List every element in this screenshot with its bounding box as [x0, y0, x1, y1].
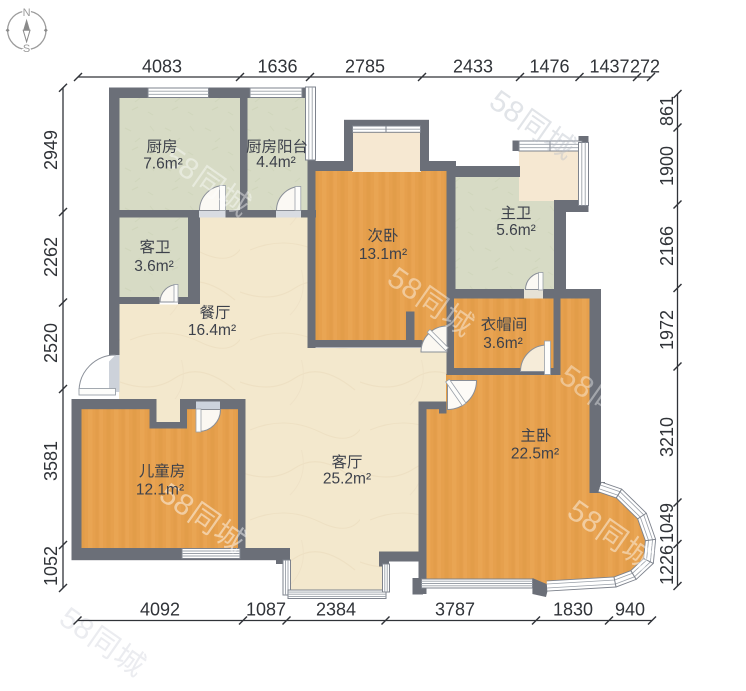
svg-text:3.6m²: 3.6m² — [483, 335, 523, 352]
svg-text:1087: 1087 — [246, 600, 286, 620]
svg-text:7.6m²: 7.6m² — [143, 156, 183, 173]
svg-text:4.4m²: 4.4m² — [256, 154, 296, 171]
svg-text:4083: 4083 — [142, 57, 182, 77]
svg-text:1830: 1830 — [553, 600, 593, 620]
svg-text:2520: 2520 — [41, 323, 61, 363]
svg-text:861: 861 — [657, 96, 677, 126]
svg-text:25.2m²: 25.2m² — [323, 471, 371, 488]
svg-text:3787: 3787 — [435, 600, 475, 620]
svg-text:3581: 3581 — [41, 441, 61, 481]
svg-text:12.1m²: 12.1m² — [136, 482, 184, 499]
svg-text:4092: 4092 — [140, 600, 180, 620]
svg-text:3210: 3210 — [657, 417, 677, 457]
svg-text:1049: 1049 — [657, 503, 677, 543]
svg-text:1636: 1636 — [257, 57, 297, 77]
svg-text:1972: 1972 — [657, 310, 677, 350]
svg-text:1226: 1226 — [657, 545, 677, 585]
svg-text:1052: 1052 — [41, 546, 61, 586]
svg-text:2949: 2949 — [41, 130, 61, 170]
svg-text:2384: 2384 — [316, 600, 356, 620]
svg-text:2262: 2262 — [41, 237, 61, 277]
svg-text:1437: 1437 — [589, 57, 629, 77]
svg-text:16.4m²: 16.4m² — [188, 322, 236, 339]
svg-text:N: N — [23, 7, 31, 19]
svg-text:272: 272 — [630, 57, 660, 77]
svg-text:940: 940 — [615, 600, 645, 620]
svg-text:2433: 2433 — [453, 57, 493, 77]
svg-text:1476: 1476 — [529, 57, 569, 77]
svg-text:2166: 2166 — [657, 226, 677, 266]
svg-text:S: S — [23, 43, 30, 55]
svg-text:22.5m²: 22.5m² — [511, 446, 559, 463]
svg-text:13.1m²: 13.1m² — [359, 246, 407, 263]
svg-text:2785: 2785 — [345, 57, 385, 77]
svg-text:1900: 1900 — [657, 146, 677, 186]
svg-text:5.6m²: 5.6m² — [496, 222, 536, 239]
svg-text:3.6m²: 3.6m² — [134, 258, 174, 275]
